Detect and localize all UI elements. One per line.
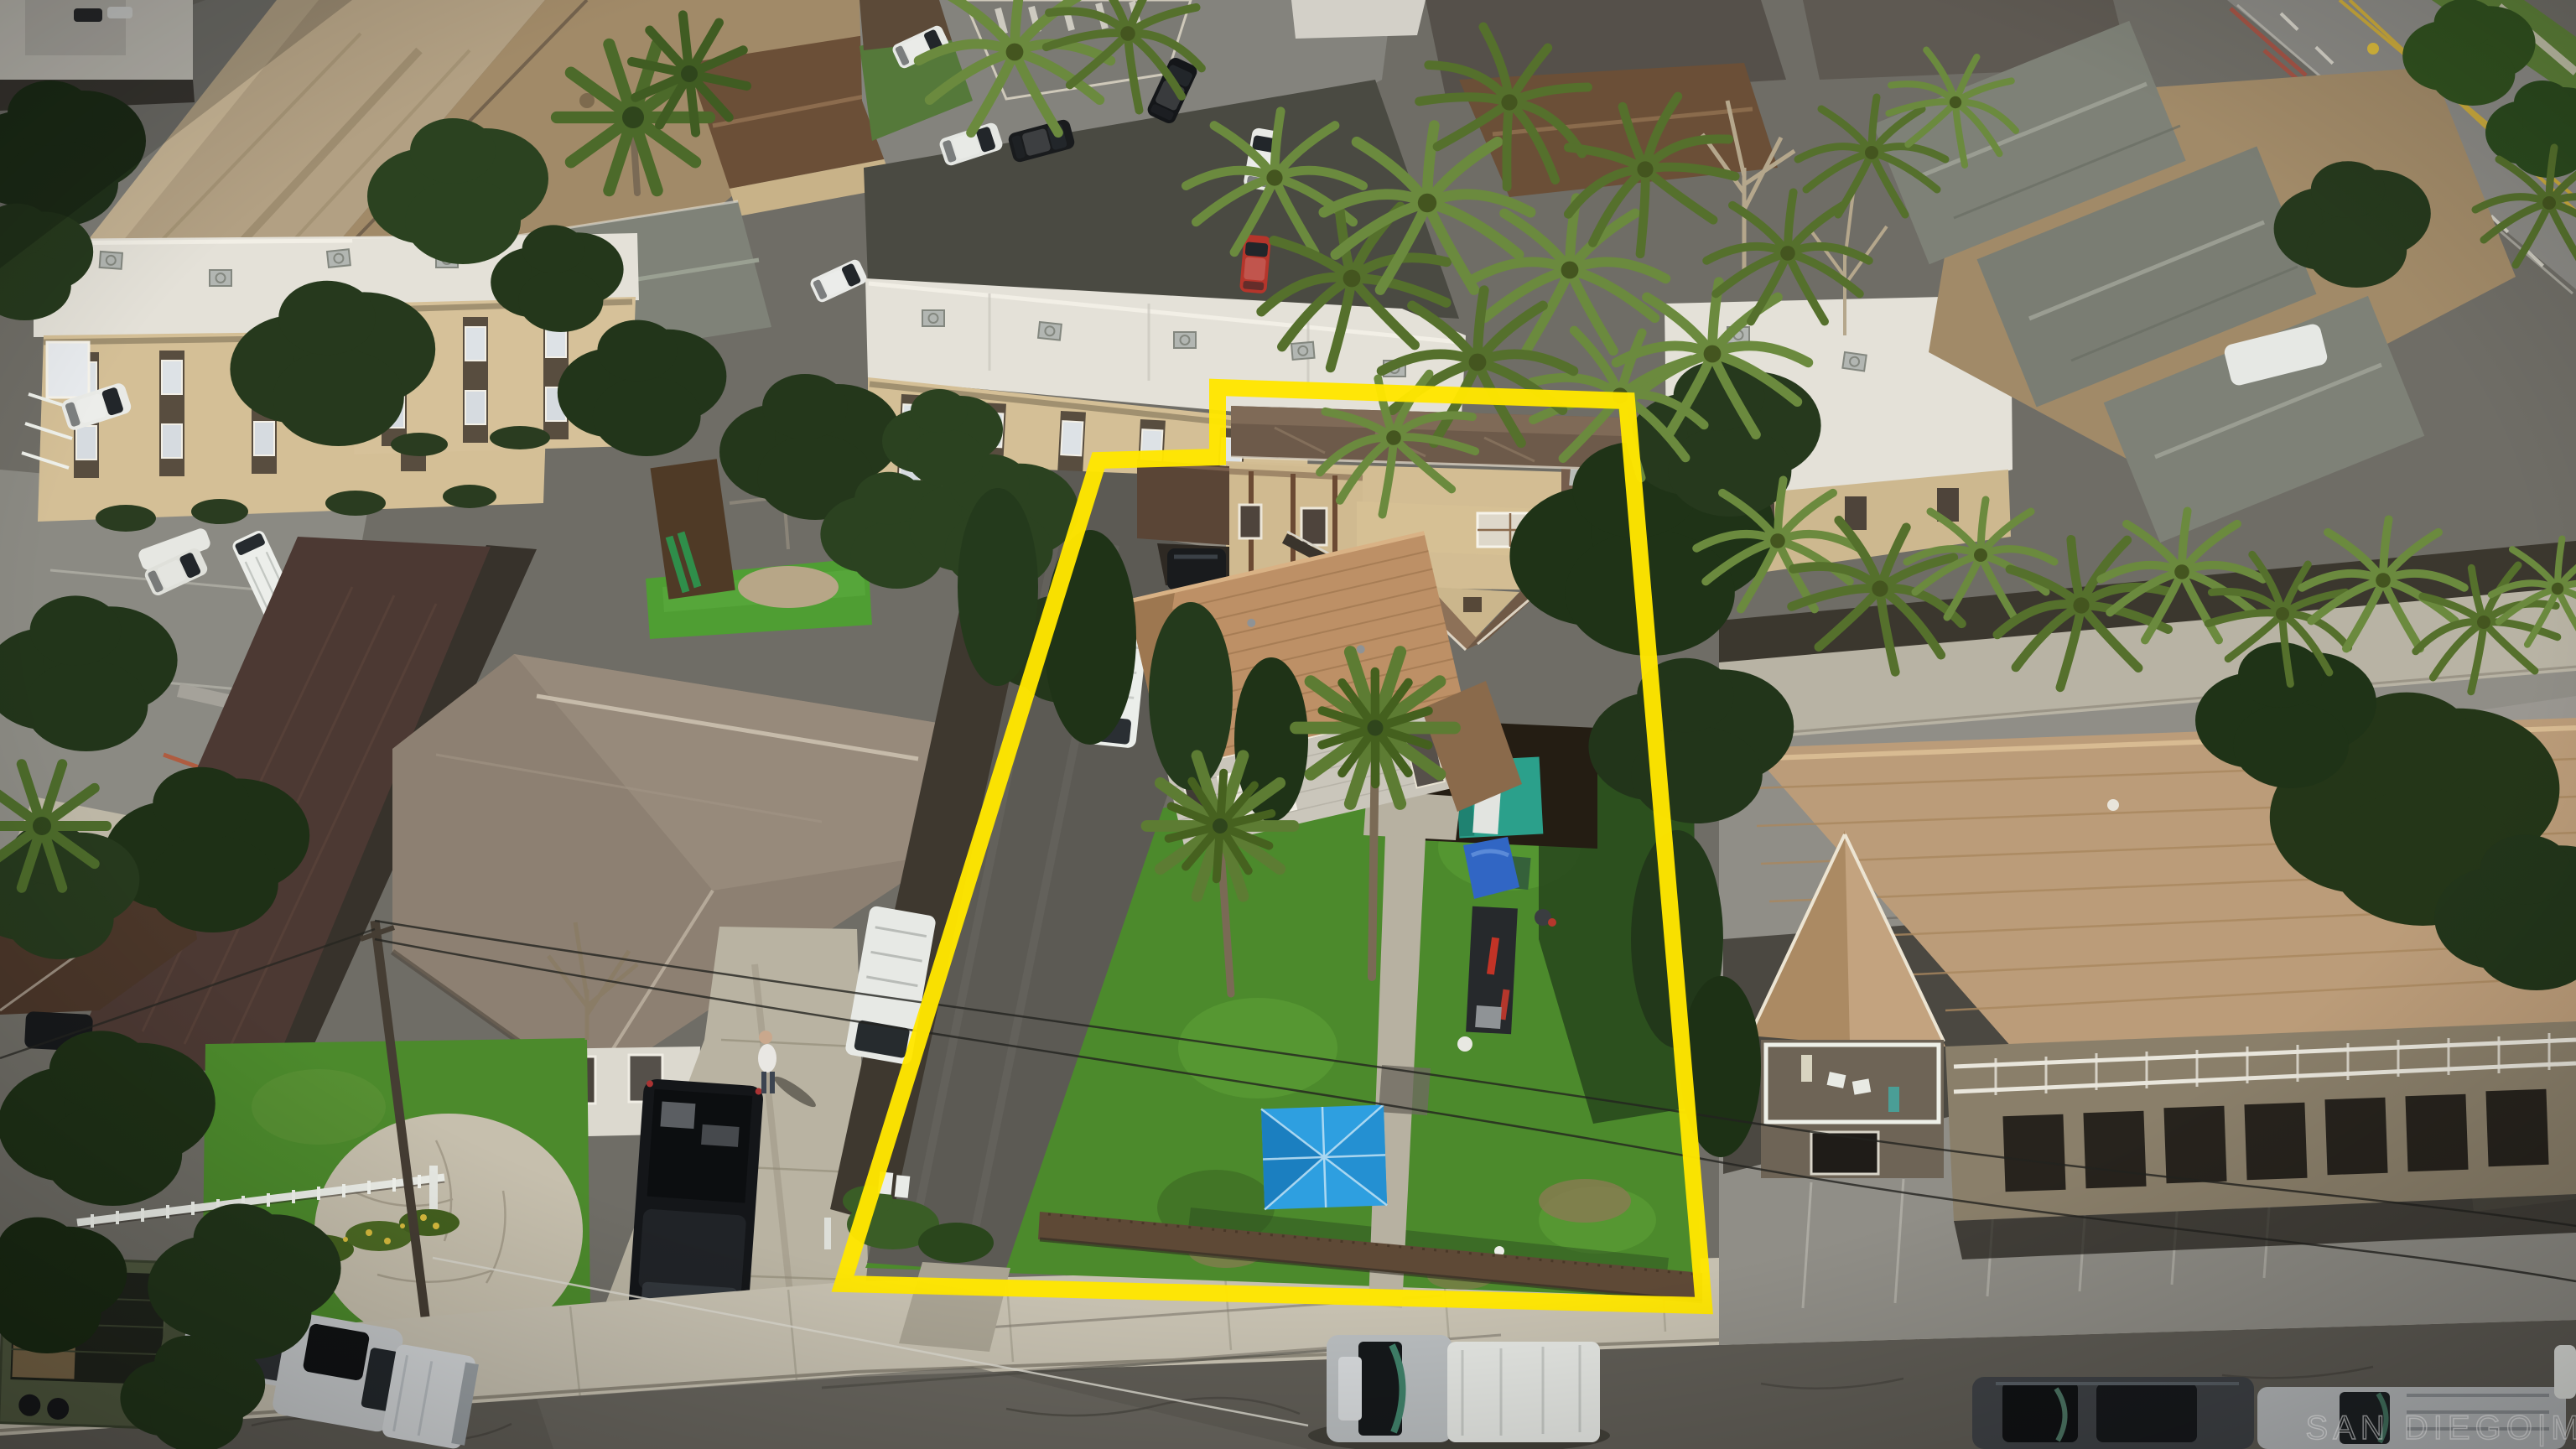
- vignette-overlay: [0, 0, 2576, 1449]
- aerial-photo: SAN DIEGO|MLS: [0, 0, 2576, 1449]
- aerial-photo-canvas: SAN DIEGO|MLS: [0, 0, 2576, 1449]
